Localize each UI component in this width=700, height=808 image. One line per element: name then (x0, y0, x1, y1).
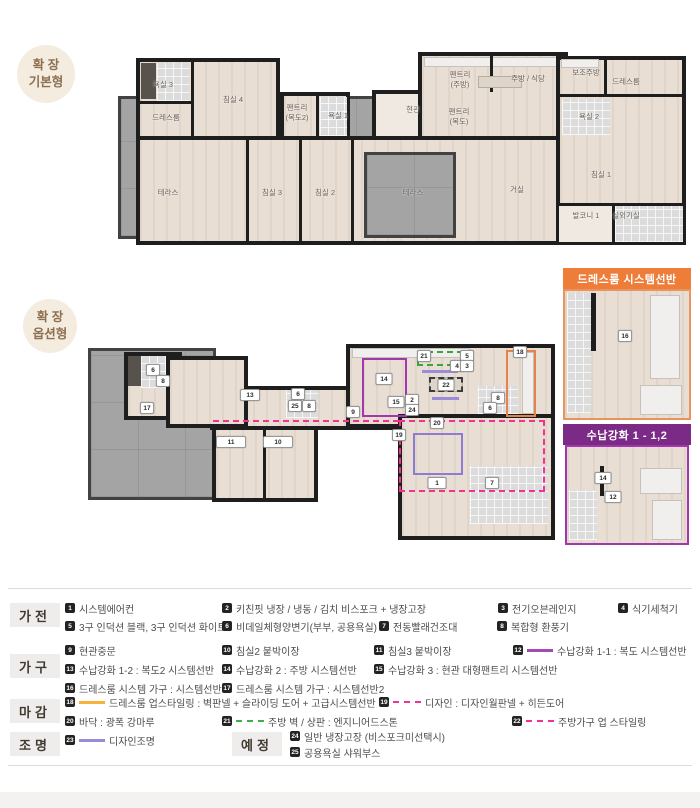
legend-item-number: 15 (374, 664, 384, 674)
legend-item: 7전동빨래건조대 (379, 620, 457, 632)
plan-marker: 9 (346, 406, 360, 418)
plan-marker: 8 (302, 400, 316, 412)
plan-marker: 21 (417, 350, 431, 362)
legend-item-number: 25 (290, 747, 300, 757)
legend-item-number: 5 (65, 621, 75, 631)
legend-item-text: 시스템에어컨 (79, 601, 134, 616)
legend-item-text: 수납강화 3 : 현관 대형팬트리 시스템선반 (388, 662, 557, 677)
legend-item-text: 현관중문 (79, 643, 116, 658)
legend-item: 13수납강화 1-2 : 복도2 시스템선반 (65, 663, 214, 675)
room-label: 침실 2 (315, 188, 335, 198)
legend-swatch-solid (527, 649, 553, 652)
legend-item: 4식기세척기 (618, 602, 678, 614)
legend-swatch-solid (79, 739, 105, 742)
plan-marker: 14 (376, 373, 393, 385)
legend-item-text: 전기오븐레인지 (512, 601, 576, 616)
system-shelf (652, 500, 682, 540)
legend-swatch-solid (79, 701, 105, 704)
legend-item-number: 12 (513, 645, 523, 655)
legend-item-text: 드레스룸 시스템 가구 : 시스템선반 (79, 681, 222, 696)
legend-category-furniture: 가구 (10, 654, 60, 678)
kitchen-counter (424, 57, 562, 67)
legend-category-appliances: 가전 (10, 603, 60, 627)
legend-item-number: 23 (65, 735, 75, 745)
room-label: 팬트리 (복도2) (286, 103, 309, 123)
storage-1-1-outline (362, 358, 407, 417)
legend-item-text: 침실2 붙박이장 (236, 643, 300, 658)
system-shelf (640, 385, 682, 415)
divider-bottom (8, 765, 692, 766)
bedroom4-block-option (166, 356, 248, 428)
legend-item-text: 주방가구 업 스타일링 (558, 714, 646, 729)
legend-item: 14수납강화 2 : 주방 시스템선반 (222, 663, 357, 675)
floorplan-page: 확 장 기본형 확 장 옵션형 (0, 0, 700, 808)
legend-item-text: 식기세척기 (632, 601, 678, 616)
legend-item-number: 7 (379, 621, 389, 631)
aux-kitchen-counter (561, 59, 599, 68)
wall-segment (136, 101, 191, 104)
plan-marker: 19 (392, 429, 406, 441)
room-label: 욕실 2 (579, 112, 599, 122)
legend-item-number: 1 (65, 603, 75, 613)
divider-top (8, 588, 692, 589)
plan-marker: 6 (483, 402, 497, 414)
legend-item-text: 일반 냉장고장 (비스포크미선택시) (304, 729, 445, 744)
legend-item: 12수납강화 1-1 : 복도 시스템선반 (513, 644, 687, 656)
wall-segment (604, 56, 607, 97)
wall-segment (351, 140, 354, 245)
legend-item-number: 8 (497, 621, 507, 631)
closet-fixture (128, 356, 141, 386)
legend-item-text: 수납강화 1-2 : 복도2 시스템선반 (79, 662, 214, 677)
legend-item-text: 수납강화 2 : 주방 시스템선반 (236, 662, 357, 677)
legend-item-number: 20 (65, 716, 75, 726)
plan-marker: 14 (595, 472, 612, 484)
legend-item: 19디자인 : 디자인월판넬 + 히든도어 (379, 696, 564, 708)
legend-item-text: 비데일체형양변기(부부, 공용욕실) (236, 619, 377, 634)
room-label: 보조주방 (572, 68, 600, 78)
design-dashed-line (213, 420, 399, 422)
legend-item: 17드레스룸 시스템 가구 : 시스템선반2 (222, 682, 384, 694)
legend-item-text: 침실3 붙박이장 (388, 643, 452, 658)
plan-marker: 25 (288, 400, 302, 412)
room-label: 테라스 (158, 188, 179, 198)
legend-item-number: 6 (222, 621, 232, 631)
plan-marker: 15 (388, 396, 405, 408)
wall-segment (556, 94, 686, 97)
plan-marker: 18 (513, 346, 527, 358)
plan-marker: 7 (485, 477, 499, 489)
legend-item-text: 주방 벽 / 상판 : 엔지니어드스톤 (268, 714, 398, 729)
room-label: 욕실 3 (153, 80, 173, 90)
legend-item: 15수납강화 3 : 현관 대형팬트리 시스템선반 (374, 663, 557, 675)
design-lighting-line (432, 397, 459, 400)
legend-item: 22주방가구 업 스타일링 (512, 715, 646, 727)
plan-marker: 6 (291, 388, 305, 400)
legend-item: 3전기오븐레인지 (498, 602, 576, 614)
legend-item-text: 디자인 : 디자인월판넬 + 히든도어 (425, 695, 564, 710)
room-label: 팬트리 (주방) (450, 70, 471, 90)
plan-marker: 13 (240, 389, 260, 401)
inset-tile (569, 490, 597, 540)
legend-category-finishes: 마감 (10, 699, 60, 723)
plan-marker: 24 (405, 404, 419, 416)
legend-item: 20바닥 : 광폭 강마루 (65, 715, 155, 727)
inset-storage-title: 수납강화 1 - 1,2 (563, 424, 691, 445)
plan-marker: 16 (618, 330, 632, 342)
legend-item-number: 3 (498, 603, 508, 613)
plan-marker: 8 (156, 375, 170, 387)
legend-item: 18드레스룸 업스타일링 : 벽판넬 + 슬라이딩 도어 + 고급시스템선반 (65, 696, 376, 708)
legend-category-planned: 예정 (232, 732, 282, 756)
room-label: 거실 (510, 185, 524, 195)
room-label: 주방 / 식당 (511, 74, 545, 84)
room-label: 테라스 (403, 188, 424, 198)
room-label: 침실 4 (223, 95, 243, 105)
legend-item-text: 수납강화 1-1 : 복도 시스템선반 (557, 643, 687, 658)
legend-item: 25공용욕실 샤워부스 (290, 746, 380, 758)
room-label: 발코니 1 (573, 211, 600, 221)
legend-item: 1시스템에어컨 (65, 602, 134, 614)
room-label: 침실 1 (591, 170, 611, 180)
plan-marker: 12 (605, 491, 622, 503)
wall-segment (191, 58, 194, 140)
legend-item-number: 17 (222, 683, 232, 693)
legend-item: 9현관중문 (65, 644, 116, 656)
legend-item: 23디자인조명 (65, 734, 155, 746)
room-label: 현관 (406, 105, 420, 115)
legend-item-text: 디자인조명 (109, 733, 155, 748)
legend-item-text: 전동빨래건조대 (393, 619, 457, 634)
legend-item: 2키친핏 냉장 / 냉동 / 김치 비스포크 + 냉장고장 (222, 602, 426, 614)
legend-swatch-dashed (526, 720, 554, 722)
room-label: 드레스룸 (152, 113, 180, 123)
legend-item-text: 복합형 환풍기 (511, 619, 569, 634)
wall-segment (299, 140, 302, 245)
legend-item-number: 2 (222, 603, 232, 613)
plan-marker: 10 (263, 436, 293, 448)
plan-marker: 17 (140, 402, 154, 414)
system-shelf (650, 295, 680, 379)
legend-item: 8복합형 환풍기 (497, 620, 569, 632)
legend-item: 6비데일체형양변기(부부, 공용욕실) (222, 620, 377, 632)
inset-dressroom-title: 드레스룸 시스템선반 (563, 268, 691, 289)
plan-marker: 11 (216, 436, 246, 448)
badge-line-1: 확 장 (33, 57, 59, 74)
legend-item-text: 키친핏 냉장 / 냉동 / 김치 비스포크 + 냉장고장 (236, 601, 426, 616)
legend-item-text: 3구 인덕션 블랙, 3구 인덕션 화이트 (79, 619, 226, 634)
legend-item-number: 18 (65, 697, 75, 707)
wall-segment (246, 136, 249, 245)
plan-marker: 1 (428, 477, 447, 489)
room-label: 욕실 1 (328, 111, 348, 121)
legend-item: 16드레스룸 시스템 가구 : 시스템선반 (65, 682, 222, 694)
legend-item-text: 공용욕실 샤워부스 (304, 745, 380, 760)
legend-item: 11침실3 붙박이장 (374, 644, 452, 656)
legend-item-number: 10 (222, 645, 232, 655)
legend-item-number: 19 (379, 697, 389, 707)
room-label: 드레스룸 (612, 77, 640, 87)
legend-item-text: 바닥 : 광폭 강마루 (79, 714, 155, 729)
legend-item-number: 16 (65, 683, 75, 693)
plan-marker: 20 (430, 417, 444, 429)
legend-item-number: 14 (222, 664, 232, 674)
legend-category-lighting: 조명 (10, 732, 60, 756)
legend-item-number: 22 (512, 716, 522, 726)
badge-expanded-basic: 확 장 기본형 (17, 45, 75, 103)
room-label: 실외기실 (612, 211, 640, 221)
legend-item-number: 13 (65, 664, 75, 674)
legend-item-number: 24 (290, 731, 300, 741)
legend-swatch-dashed (236, 720, 264, 722)
badge-expanded-option: 확 장 옵션형 (23, 299, 77, 353)
room-label: 팬트리 (복도) (449, 107, 470, 127)
legend-item-number: 4 (618, 603, 628, 613)
wall-segment (591, 293, 596, 351)
wall-segment (316, 92, 319, 140)
plan-marker: 22 (438, 379, 455, 391)
legend-item: 10침실2 붙박이장 (222, 644, 300, 656)
system-shelf (640, 468, 682, 494)
badge-line-1: 확 장 (37, 309, 63, 326)
footer-band (0, 792, 700, 808)
room-label: 침실 3 (262, 188, 282, 198)
legend-item-number: 11 (374, 645, 384, 655)
legend-item-text: 드레스룸 시스템 가구 : 시스템선반2 (236, 681, 384, 696)
plan-marker: 3 (460, 360, 474, 372)
dressroom-outline (506, 350, 536, 417)
badge-line-2: 기본형 (29, 74, 64, 91)
legend-item: 24일반 냉장고장 (비스포크미선택시) (290, 730, 445, 742)
badge-line-2: 옵션형 (33, 326, 68, 343)
legend-item-number: 9 (65, 645, 75, 655)
legend-swatch-dashed (393, 701, 421, 703)
legend-item-number: 21 (222, 716, 232, 726)
inset-tile (567, 293, 591, 413)
legend-item-text: 드레스룸 업스타일링 : 벽판넬 + 슬라이딩 도어 + 고급시스템선반 (109, 695, 376, 710)
legend-item: 53구 인덕션 블랙, 3구 인덕션 화이트 (65, 620, 226, 632)
legend-item: 21주방 벽 / 상판 : 엔지니어드스톤 (222, 715, 398, 727)
design-lighting-rect (413, 433, 463, 475)
